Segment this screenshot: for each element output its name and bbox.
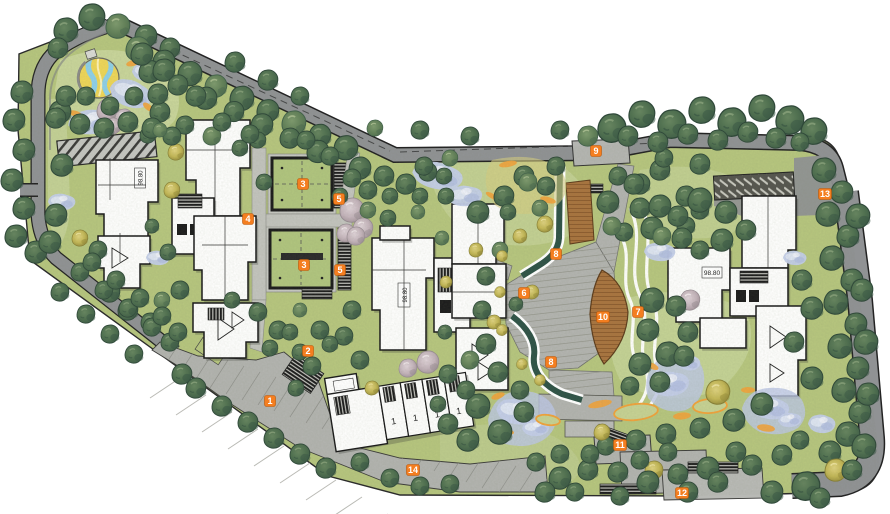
svg-text:13: 13 bbox=[820, 189, 830, 199]
svg-text:10: 10 bbox=[598, 312, 608, 322]
svg-text:9: 9 bbox=[593, 146, 598, 156]
svg-text:3: 3 bbox=[301, 260, 306, 270]
svg-text:4: 4 bbox=[245, 214, 250, 224]
svg-text:14: 14 bbox=[408, 465, 418, 475]
svg-text:3: 3 bbox=[300, 179, 305, 189]
svg-text:6: 6 bbox=[521, 288, 526, 298]
svg-text:8: 8 bbox=[553, 249, 558, 259]
svg-text:12: 12 bbox=[677, 488, 687, 498]
svg-text:11: 11 bbox=[615, 440, 625, 450]
svg-text:5: 5 bbox=[337, 265, 342, 275]
svg-text:7: 7 bbox=[635, 307, 640, 317]
svg-text:5: 5 bbox=[336, 194, 341, 204]
svg-text:2: 2 bbox=[305, 346, 310, 356]
svg-text:1: 1 bbox=[267, 396, 272, 406]
svg-text:8: 8 bbox=[548, 357, 553, 367]
